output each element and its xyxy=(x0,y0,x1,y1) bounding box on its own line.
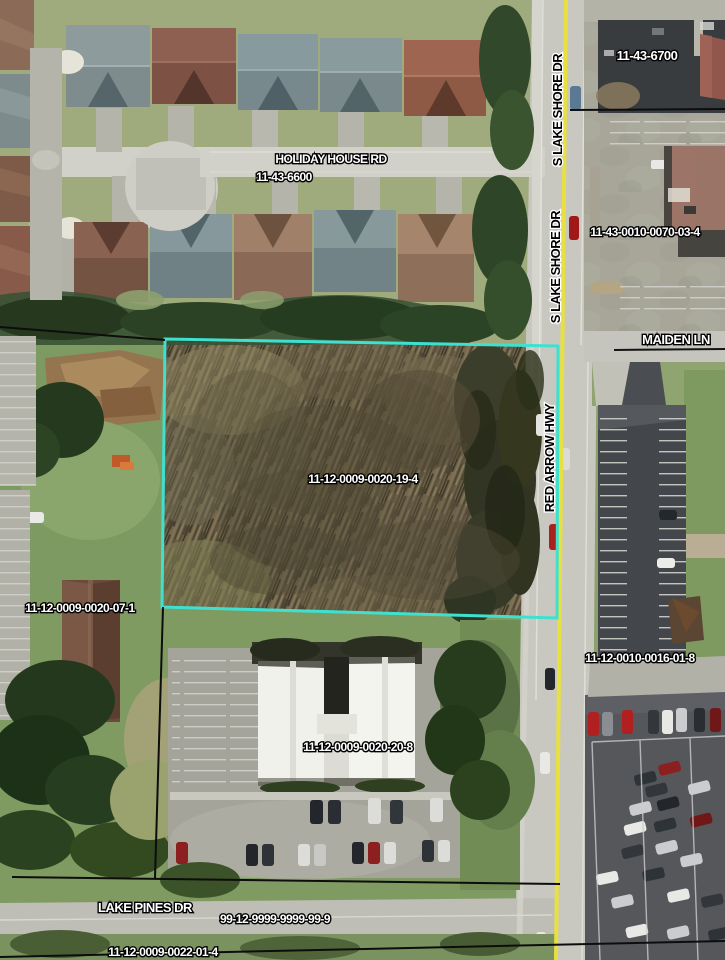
svg-text:11-43-0010-0070-03-4: 11-43-0010-0070-03-4 xyxy=(590,225,700,239)
svg-text:11-43-6600: 11-43-6600 xyxy=(256,170,313,184)
svg-text:11-12-0009-0020-20-8: 11-12-0009-0020-20-8 xyxy=(303,740,413,754)
svg-text:RED ARROW HWY: RED ARROW HWY xyxy=(542,403,557,512)
svg-text:99-12-9999-9999-99-9: 99-12-9999-9999-99-9 xyxy=(220,912,331,926)
svg-text:11-12-0009-0020-07-1: 11-12-0009-0020-07-1 xyxy=(25,601,135,615)
svg-text:LAKE PINES DR: LAKE PINES DR xyxy=(98,900,193,915)
svg-text:S LAKE SHORE DR: S LAKE SHORE DR xyxy=(550,53,565,167)
svg-text:HOLIDAY HOUSE RD: HOLIDAY HOUSE RD xyxy=(275,152,387,166)
svg-text:11-12-0009-0020-19-4: 11-12-0009-0020-19-4 xyxy=(308,472,418,486)
svg-text:MAIDEN LN: MAIDEN LN xyxy=(642,332,710,347)
svg-text:11-12-0010-0016-01-8: 11-12-0010-0016-01-8 xyxy=(585,651,695,665)
svg-text:S LAKE SHORE DR: S LAKE SHORE DR xyxy=(548,210,563,324)
svg-text:11-43-6700: 11-43-6700 xyxy=(617,48,678,63)
svg-text:11-12-0009-0022-01-4: 11-12-0009-0022-01-4 xyxy=(108,945,218,959)
